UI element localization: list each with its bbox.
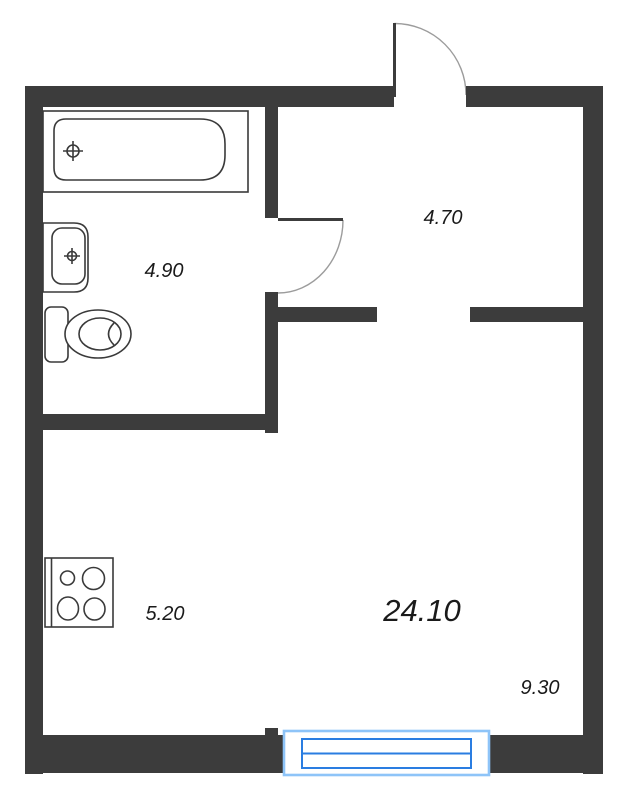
wall-bathroom-bottom xyxy=(25,414,278,430)
floorplan-drawing: 4.90 4.70 5.20 24.10 9.30 xyxy=(0,0,632,800)
sink-icon xyxy=(43,223,88,292)
entrance-door-leaf xyxy=(393,23,396,97)
stove-icon xyxy=(45,558,113,627)
entrance-door-swing-arc xyxy=(395,24,467,96)
kitchen-area-label: 5.20 xyxy=(146,603,185,625)
window-icon xyxy=(284,731,489,775)
wall-bottom-right xyxy=(490,735,603,773)
wall-bathroom-right-lower xyxy=(265,292,278,433)
toilet-icon xyxy=(45,307,131,362)
bathtub-icon xyxy=(43,111,248,192)
bathroom-area-label: 4.90 xyxy=(145,260,184,282)
floorplan-canvas: 4.90 4.70 5.20 24.10 9.30 xyxy=(0,0,632,800)
bathroom-door-leaf xyxy=(278,218,343,221)
wall-top-right xyxy=(466,86,603,107)
toilet-bowl-inner xyxy=(79,318,121,350)
window-zone-area-label: 9.30 xyxy=(521,677,560,699)
living-room-area-label: 24.10 xyxy=(382,593,461,628)
wall-hall-bottom-left xyxy=(278,307,377,322)
wall-top-left xyxy=(25,86,394,107)
hallway-area-label: 4.70 xyxy=(424,207,463,229)
wall-bathroom-right-upper xyxy=(265,107,278,218)
bathroom-door-swing-arc xyxy=(278,220,343,293)
wall-hall-bottom-right xyxy=(470,307,583,322)
bathtub-inner xyxy=(54,119,225,180)
wall-window-pier xyxy=(265,728,278,736)
wall-bottom-left xyxy=(25,735,283,773)
wall-right-outer xyxy=(583,86,603,774)
